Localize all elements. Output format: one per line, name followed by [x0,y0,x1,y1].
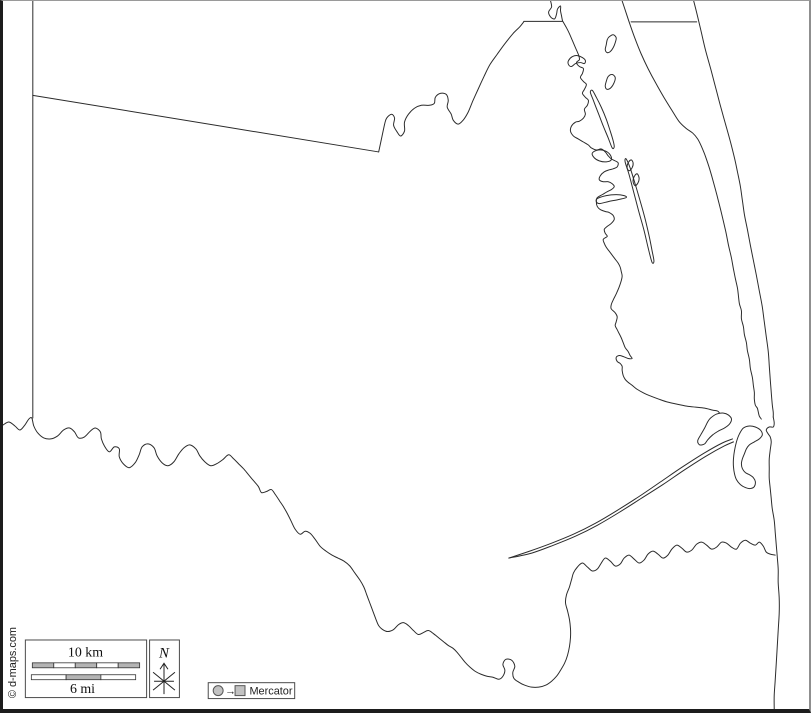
marsh-island-comma [605,74,615,89]
globe-circle-icon [213,686,223,696]
scale-mi-label: 6 mi [70,682,95,697]
compass-star-icon [153,663,175,694]
scale-bar-block: 10 km 6 mi [25,640,146,698]
copyright-label: © d-maps.com [7,627,19,698]
scale-km-label: 10 km [68,645,103,660]
projection-label: Mercator [249,686,292,698]
km-segment-1 [32,663,53,668]
northwest-boundary-diagonal [33,95,379,152]
map-page: 10 km 6 mi N [0,0,811,713]
tolomato-spit-sliver [625,159,654,264]
km-segment-2 [54,663,75,668]
scale-bar-mi [31,675,135,680]
guana-spit-sliver [590,90,614,149]
projection-arrow-icon: → [225,686,236,698]
matanzas-spit-north-edge [509,439,733,558]
atlantic-coast-south [766,417,779,709]
inlet-peninsula [698,413,732,445]
county-outline-map: 10 km 6 mi N [3,1,809,709]
km-segment-4 [97,663,118,668]
top-edge-creek [549,1,563,21]
mi-segment-3 [101,675,136,680]
mainland-river-shore [563,21,720,413]
marsh-island-bean [605,35,616,53]
inlet-island [733,426,762,489]
map-outlines [3,1,779,709]
scale-bar-km [32,663,139,668]
km-segment-3 [75,663,96,668]
mi-segment-2 [66,675,101,680]
atlantic-coast-north [694,1,774,417]
flat-map-square-icon [235,686,245,696]
marsh-island-hook [568,56,585,67]
projection-badge: → Mercator [208,683,294,699]
northwest-creek-wiggle [379,22,524,152]
matanzas-spit-south-edge [509,442,734,558]
southern-boundary-river [3,418,775,688]
km-segment-5 [118,663,139,668]
north-arrow-block: N [150,640,180,698]
mi-segment-1 [31,675,66,680]
north-label: N [158,645,170,661]
